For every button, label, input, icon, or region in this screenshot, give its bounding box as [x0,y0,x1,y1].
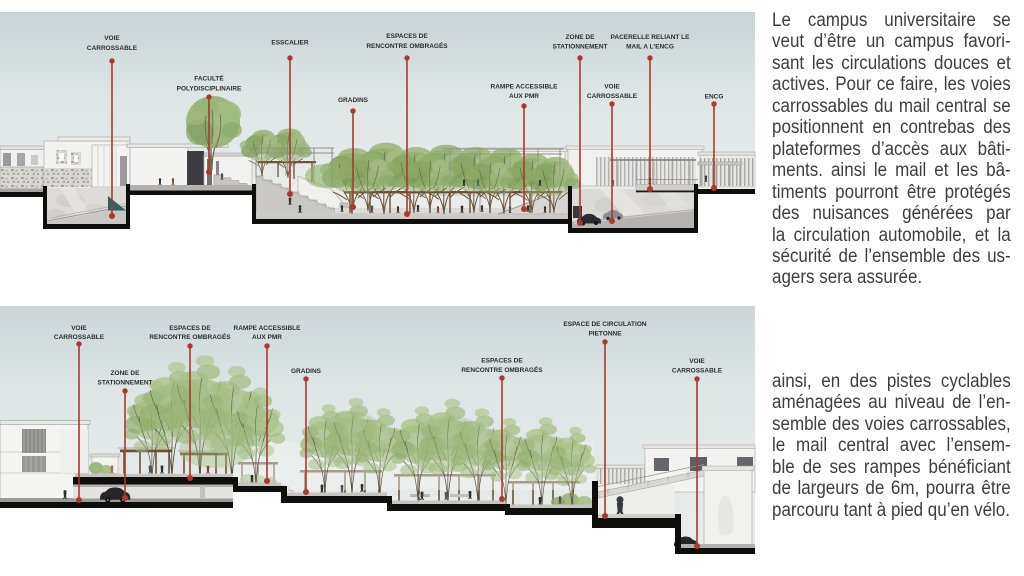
svg-text:ZONE DE: ZONE DE [111,370,141,377]
svg-text:RENCONTRE OMBRAGÉS: RENCONTRE OMBRAGÉS [149,332,231,341]
svg-text:GRADINS: GRADINS [291,368,322,375]
svg-text:STATIONNEMENT: STATIONNEMENT [97,380,152,387]
svg-text:ESSCALIER: ESSCALIER [271,40,309,47]
svg-text:RAMPE ACCESSIBLE: RAMPE ACCESSIBLE [491,84,559,91]
svg-text:PACERELLE RELIANT LE: PACERELLE RELIANT LE [611,34,691,41]
svg-text:AUX PMR: AUX PMR [252,334,282,341]
svg-text:ESPACES DE: ESPACES DE [481,358,523,365]
svg-text:ZONE DE: ZONE DE [566,34,596,41]
svg-text:VOIE: VOIE [689,358,705,365]
svg-text:VOIE: VOIE [71,325,87,332]
svg-text:CARROSSABLE: CARROSSABLE [672,368,723,375]
svg-text:ESPACES DE: ESPACES DE [169,325,211,332]
svg-text:VOIE: VOIE [604,84,620,91]
svg-text:AUX PMR: AUX PMR [509,93,539,100]
svg-text:ESPACE DE CIRCULATION: ESPACE DE CIRCULATION [563,321,646,328]
svg-text:ENCG: ENCG [705,94,724,101]
svg-text:CARROSSABLE: CARROSSABLE [587,93,638,100]
svg-text:RENCONTRE OMBRAGÉS: RENCONTRE OMBRAGÉS [366,41,448,50]
svg-text:STATIONNEMENT: STATIONNEMENT [552,44,607,51]
svg-text:FACULTÉ: FACULTÉ [194,74,224,83]
svg-text:MAIL A L’ENCG: MAIL A L’ENCG [626,44,674,51]
svg-text:RAMPE ACCESSIBLE: RAMPE ACCESSIBLE [234,325,302,332]
svg-text:CARROSSABLE: CARROSSABLE [54,334,105,341]
svg-text:POLYDISCIPLINAIRE: POLYDISCIPLINAIRE [177,86,242,93]
svg-text:VOIE: VOIE [104,35,120,42]
svg-text:CARROSSABLE: CARROSSABLE [87,45,138,52]
svg-text:ESPACES DE: ESPACES DE [386,33,428,40]
svg-text:PIETONNE: PIETONNE [588,331,622,338]
svg-text:GRADINS: GRADINS [338,97,369,104]
svg-text:RENCONTRE OMBRAGÉS: RENCONTRE OMBRAGÉS [461,365,543,374]
